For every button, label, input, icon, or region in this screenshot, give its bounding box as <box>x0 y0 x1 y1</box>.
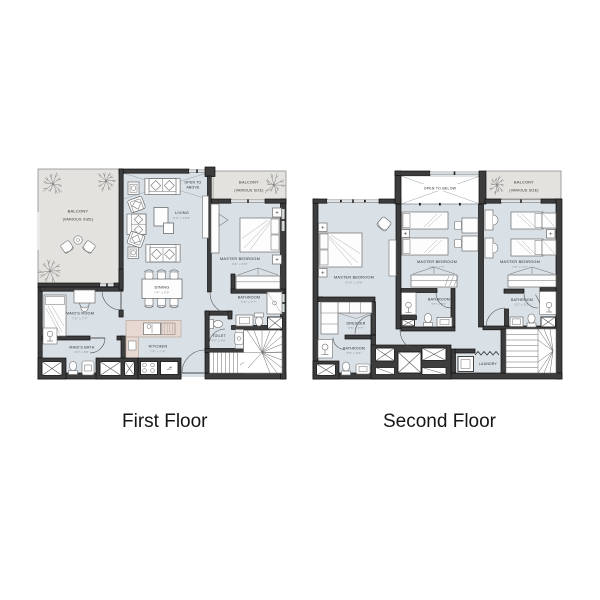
svg-text:5'5" x 7'7": 5'5" x 7'7" <box>241 300 256 304</box>
svg-text:ABOVE: ABOVE <box>187 186 200 190</box>
svg-text:5'5" x 5'5": 5'5" x 5'5" <box>515 303 530 307</box>
svg-text:5'5" x 5'5": 5'5" x 5'5" <box>432 302 447 306</box>
svg-text:MAID'S BATH: MAID'S BATH <box>69 346 94 350</box>
svg-text:(VARIOUS SIZE): (VARIOUS SIZE) <box>509 189 538 193</box>
svg-text:7'4" x 7'7": 7'4" x 7'7" <box>512 265 528 269</box>
svg-text:BALCONY: BALCONY <box>514 181 534 185</box>
svg-text:7'4" x 7'4": 7'4" x 7'4" <box>150 349 166 353</box>
svg-text:BALCONY: BALCONY <box>68 209 89 214</box>
svg-text:BALCONY: BALCONY <box>239 181 259 185</box>
svg-text:LIVING: LIVING <box>175 211 189 215</box>
svg-text:4'0" x 6'5": 4'0" x 6'5" <box>74 350 89 354</box>
svg-text:MAID'S ROOM: MAID'S ROOM <box>66 312 94 316</box>
svg-text:MASTER BEDROOM: MASTER BEDROOM <box>220 257 260 261</box>
svg-text:DINING: DINING <box>154 285 169 290</box>
svg-text:7'4" x 9'9": 7'4" x 9'9" <box>154 290 170 294</box>
svg-text:LAUNDRY: LAUNDRY <box>479 362 497 366</box>
svg-text:9'4" x 16'0": 9'4" x 16'0" <box>173 216 191 220</box>
svg-text:(VARIOUS SIZE): (VARIOUS SIZE) <box>63 218 94 222</box>
svg-text:MASTER BEDROOM: MASTER BEDROOM <box>334 276 374 280</box>
svg-text:OPEN TO: OPEN TO <box>185 181 202 185</box>
svg-text:BATHROOM: BATHROOM <box>511 298 533 302</box>
svg-text:BATHROOM: BATHROOM <box>238 296 261 300</box>
svg-text:BATHROOM: BATHROOM <box>343 347 365 351</box>
svg-text:9'10" x 9'9": 9'10" x 9'9" <box>345 280 363 284</box>
svg-text:7'0" x 7'7": 7'0" x 7'7" <box>72 316 88 320</box>
svg-text:KITCHEN: KITCHEN <box>149 344 168 349</box>
svg-text:(VARIOUS SIZE): (VARIOUS SIZE) <box>234 189 263 193</box>
svg-text:5'5" x 5'5": 5'5" x 5'5" <box>347 351 362 355</box>
svg-text:OPEN TO BELOW: OPEN TO BELOW <box>424 187 457 191</box>
svg-text:TOILET: TOILET <box>212 334 225 338</box>
svg-text:⎇: ⎇ <box>166 366 172 372</box>
svg-text:9'4" x 9'9": 9'4" x 9'9" <box>232 262 248 266</box>
svg-text:4'0" x 4'6": 4'0" x 4'6" <box>212 339 227 343</box>
svg-text:MASTER BEDROOM: MASTER BEDROOM <box>500 260 540 264</box>
svg-text:DRESSER: DRESSER <box>346 322 365 326</box>
svg-text:BATHROOM: BATHROOM <box>428 298 450 302</box>
svg-text:MASTER BEDROOM: MASTER BEDROOM <box>417 260 457 264</box>
